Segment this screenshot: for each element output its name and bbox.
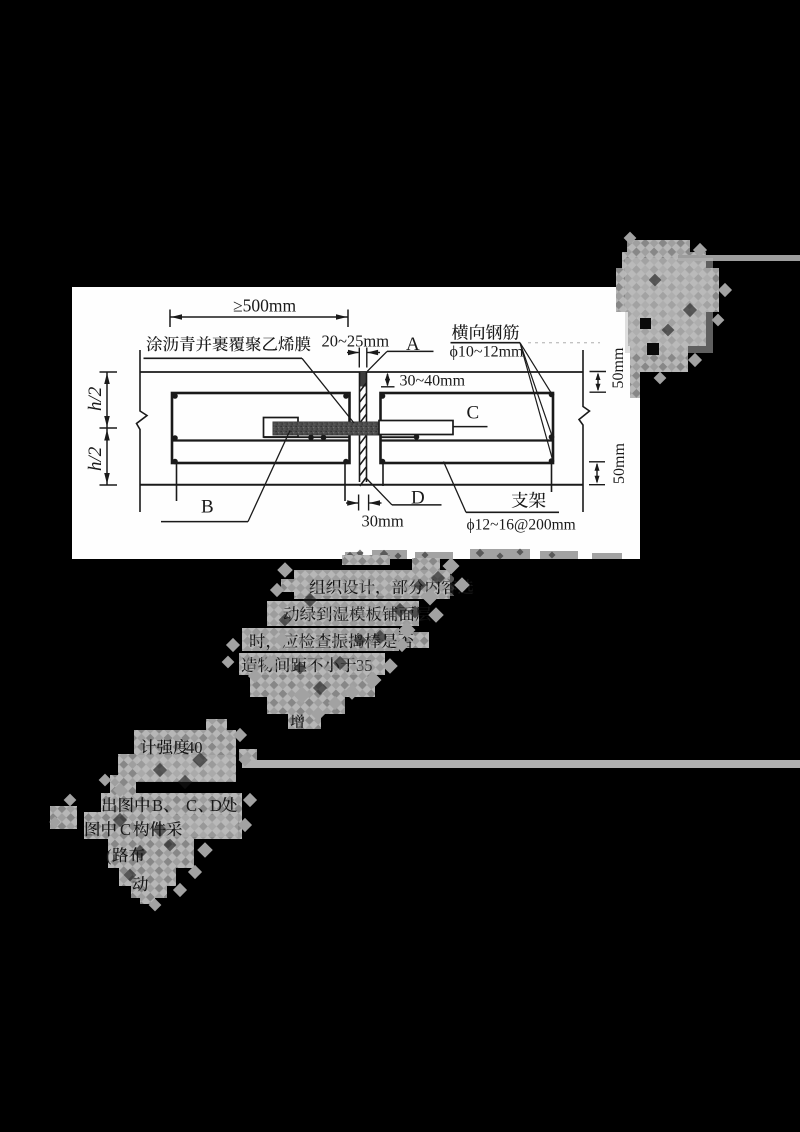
svg-text:C: C <box>467 403 480 424</box>
svg-text:≥500mm: ≥500mm <box>233 296 296 316</box>
svg-text:D: D <box>210 796 222 815</box>
svg-text:30~40mm: 30~40mm <box>400 373 466 390</box>
svg-text:B: B <box>152 796 163 815</box>
svg-text:ϕ12~16@200mm: ϕ12~16@200mm <box>467 517 576 534</box>
svg-text:20~25mm: 20~25mm <box>322 332 390 351</box>
svg-text:h/2: h/2 <box>85 386 106 411</box>
svg-text:ϕ10~12mm: ϕ10~12mm <box>450 344 525 361</box>
svg-text:h/2: h/2 <box>85 446 106 471</box>
svg-text:B: B <box>201 497 214 518</box>
svg-text:50mm: 50mm <box>610 347 627 388</box>
svg-text:C: C <box>186 796 197 815</box>
svg-text:(: ( <box>106 846 112 865</box>
svg-text:30mm: 30mm <box>362 512 404 531</box>
svg-text:50mm: 50mm <box>611 443 628 484</box>
